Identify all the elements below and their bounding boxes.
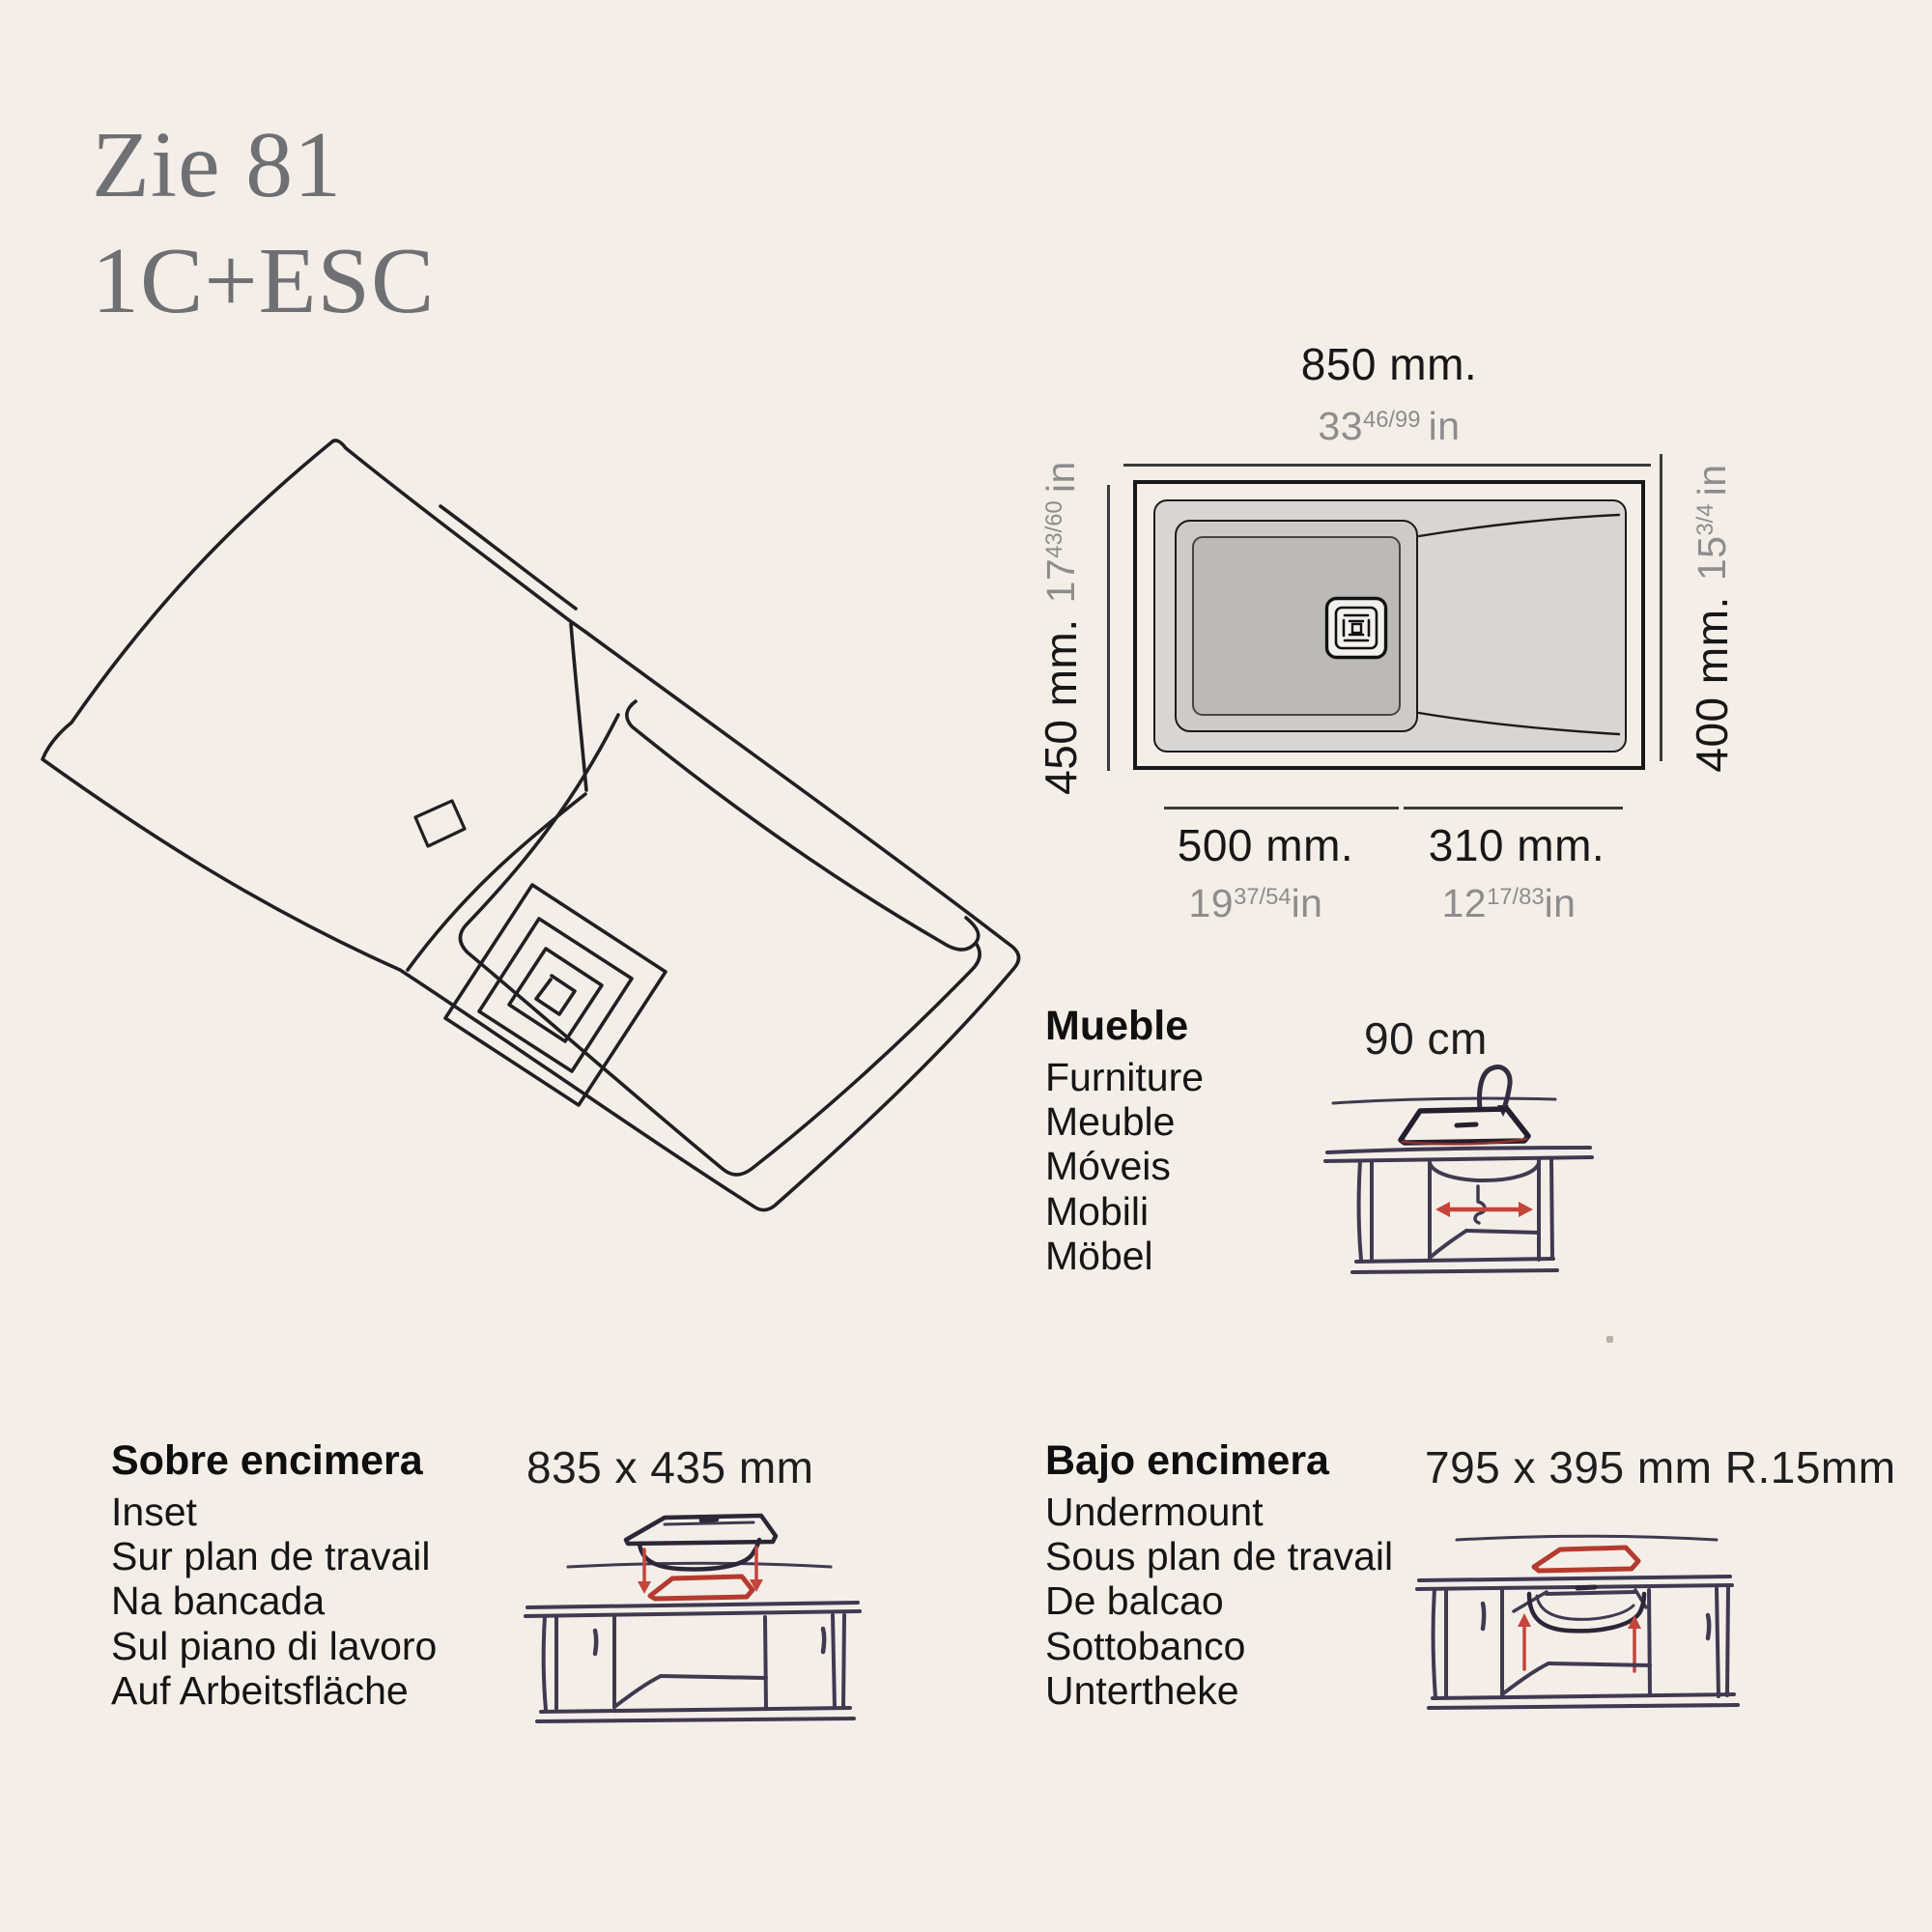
drain-graphic xyxy=(1324,596,1388,660)
section-furniture: Mueble Furniture Meuble Móveis Mobili Mö… xyxy=(1045,1003,1204,1278)
page-title: Zie 81 1C+ESC xyxy=(92,108,435,339)
sketch-bowl-rim xyxy=(460,701,980,1175)
sketch-crease xyxy=(408,794,585,970)
dimension-bottom-right-inches: 1217/83in xyxy=(1345,881,1673,926)
sketch-fold-double-line xyxy=(440,506,576,609)
sink-perspective-sketch xyxy=(10,415,1072,1265)
undermount-heading: Bajo encimera xyxy=(1045,1437,1393,1485)
dimension-line-bottom-right xyxy=(1404,807,1623,810)
spec-sheet-page: Zie 81 1C+ESC 850 mm. 3346/99in xyxy=(0,0,1932,1932)
inset-cabinet-sketch xyxy=(512,1503,908,1793)
dimension-line-left xyxy=(1107,485,1110,771)
furniture-translation: Furniture xyxy=(1045,1055,1204,1099)
inset-heading: Sobre encimera xyxy=(111,1437,437,1485)
section-inset: Sobre encimera Inset Sur plan de travail… xyxy=(111,1437,437,1713)
undermount-cabinet-sketch xyxy=(1406,1503,1850,1793)
furniture-cabinet-sketch xyxy=(1314,1049,1604,1329)
furniture-heading: Mueble xyxy=(1045,1003,1204,1050)
dimension-right-label: 400 mm. 153/4in xyxy=(1685,309,1739,927)
inset-translation: Inset xyxy=(111,1490,437,1534)
undermount-translation: De balcao xyxy=(1045,1578,1393,1623)
sketch-overflow-hole xyxy=(415,801,465,846)
furniture-translation: Möbel xyxy=(1045,1234,1204,1278)
product-name: Zie 81 xyxy=(92,108,435,224)
inset-translation: Sur plan de travail xyxy=(111,1534,437,1578)
dimension-line-top xyxy=(1123,464,1651,467)
inset-size: 835 x 435 mm xyxy=(526,1441,813,1493)
inset-translation: Na bancada xyxy=(111,1578,437,1623)
dimension-top-mm: 850 mm. xyxy=(1225,338,1553,390)
inset-translation: Auf Arbeitsfläche xyxy=(111,1668,437,1713)
sketch-drain-square-2 xyxy=(479,919,632,1071)
drainer-slope-lines xyxy=(1135,480,1647,770)
undermount-translation: Undermount xyxy=(1045,1490,1393,1534)
undermount-translation: Sous plan de travail xyxy=(1045,1534,1393,1578)
dimension-line-right xyxy=(1660,454,1662,761)
sketch-outline xyxy=(43,440,1019,1210)
section-undermount: Bajo encimera Undermount Sous plan de tr… xyxy=(1045,1437,1393,1713)
dimension-left-label: 450 mm. 1743/60in xyxy=(1034,319,1088,937)
undermount-translation: Sottobanco xyxy=(1045,1624,1393,1668)
inset-translation: Sul piano di lavoro xyxy=(111,1624,437,1668)
sketch-drain-square-4 xyxy=(536,976,575,1014)
product-variant: 1C+ESC xyxy=(92,224,435,340)
furniture-translation: Meuble xyxy=(1045,1099,1204,1144)
dimension-bottom-right-mm: 310 mm. xyxy=(1352,819,1681,871)
furniture-translation: Mobili xyxy=(1045,1189,1204,1234)
furniture-translation: Móveis xyxy=(1045,1144,1204,1188)
dimension-top-inches: 3346/99in xyxy=(1225,404,1553,449)
sketch-fold-spine xyxy=(571,624,586,790)
undermount-translation: Untertheke xyxy=(1045,1668,1393,1713)
stray-mark xyxy=(1606,1336,1613,1343)
undermount-size: 795 x 395 mm R.15mm xyxy=(1425,1441,1896,1493)
sketch-drain-square-1 xyxy=(445,885,666,1105)
dimension-line-bottom-left xyxy=(1164,807,1399,810)
